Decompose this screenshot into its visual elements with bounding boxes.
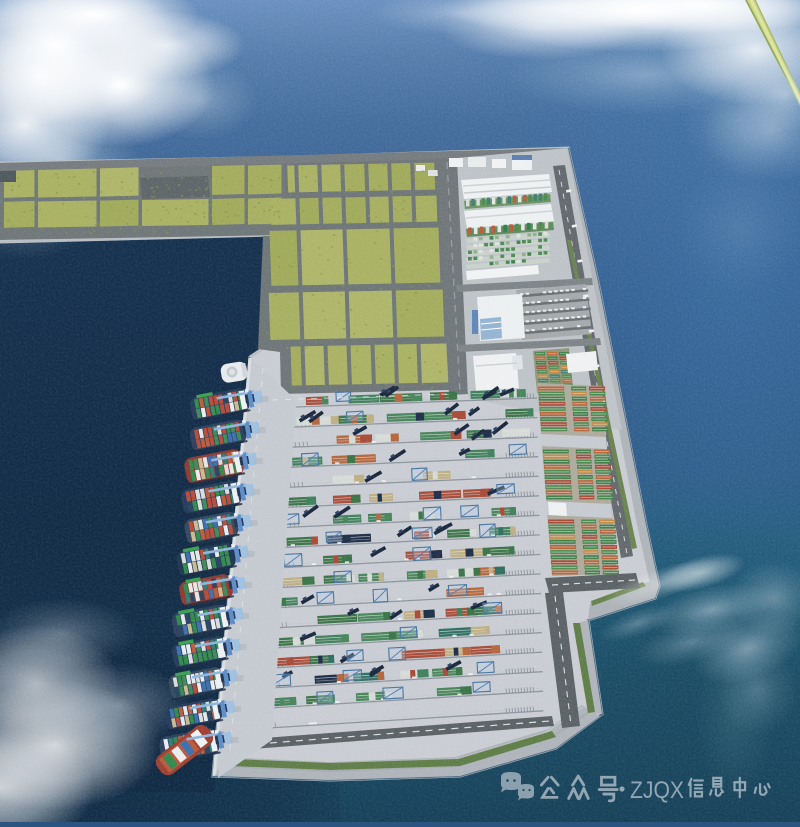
svg-text:ZJQX: ZJQX [630, 777, 684, 804]
